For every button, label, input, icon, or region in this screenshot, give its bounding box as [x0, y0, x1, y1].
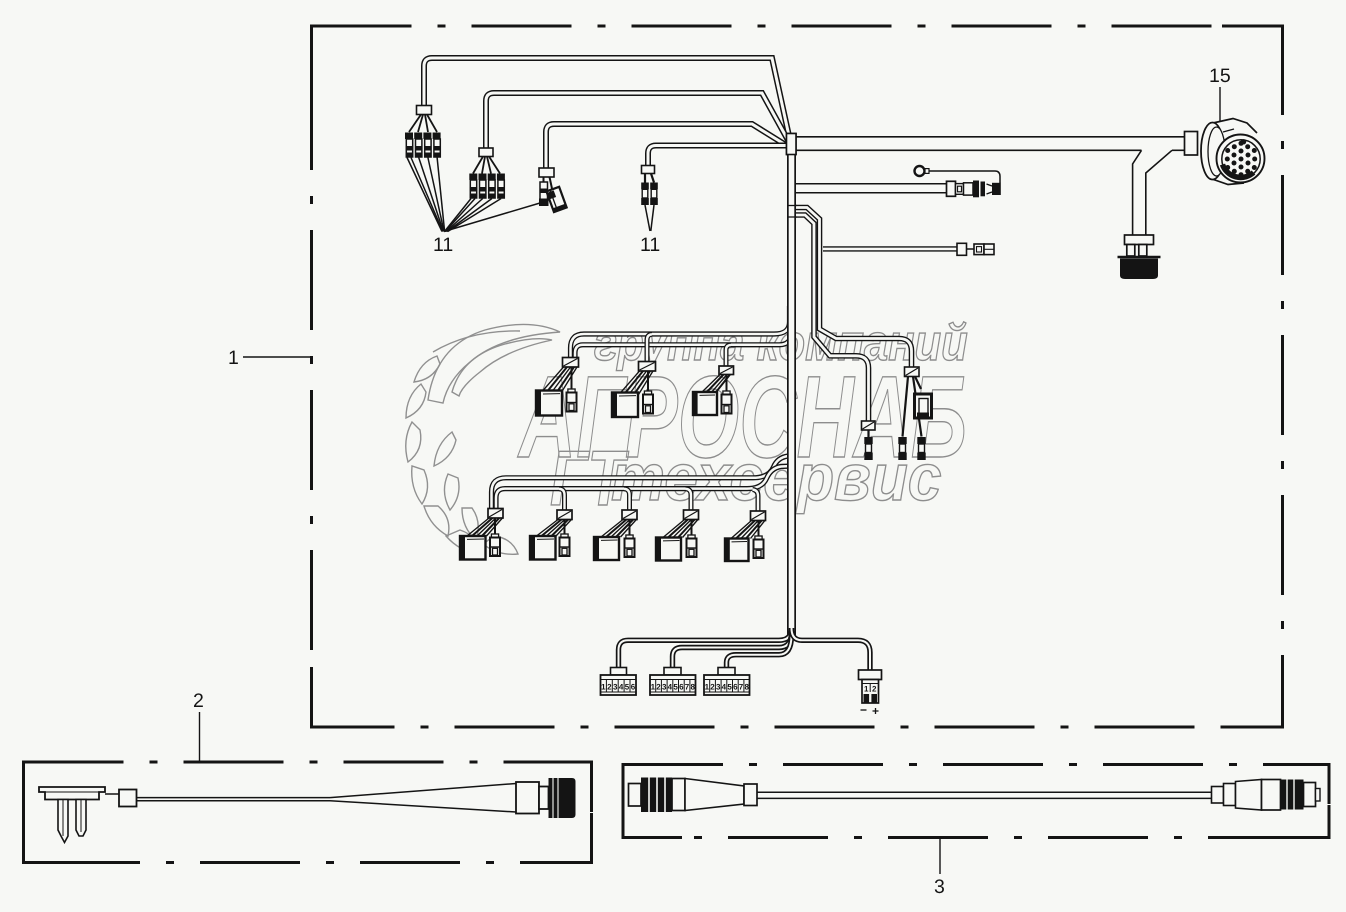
svg-text:5: 5 [673, 683, 678, 692]
svg-text:3: 3 [613, 683, 618, 692]
svg-text:3: 3 [662, 683, 667, 692]
svg-text:3: 3 [934, 876, 945, 898]
svg-text:1: 1 [651, 683, 656, 692]
svg-text:5: 5 [727, 683, 732, 692]
svg-text:+: + [872, 704, 879, 718]
svg-text:8: 8 [690, 683, 695, 692]
svg-text:4: 4 [668, 683, 673, 692]
svg-text:1: 1 [601, 683, 606, 692]
svg-text:5: 5 [625, 683, 630, 692]
svg-text:15: 15 [1209, 65, 1231, 87]
svg-text:11: 11 [640, 234, 660, 256]
svg-text:2: 2 [193, 690, 204, 712]
svg-text:11: 11 [433, 234, 453, 256]
svg-text:8: 8 [744, 683, 749, 692]
svg-text:4: 4 [722, 683, 727, 692]
svg-text:3: 3 [716, 683, 721, 692]
svg-text:7: 7 [685, 683, 690, 692]
svg-text:7: 7 [739, 683, 744, 692]
svg-text:−: − [860, 703, 867, 717]
svg-text:1: 1 [705, 683, 710, 692]
svg-text:2: 2 [656, 683, 661, 692]
svg-text:2: 2 [710, 683, 715, 692]
svg-text:6: 6 [733, 683, 738, 692]
svg-text:4: 4 [619, 683, 624, 692]
svg-text:6: 6 [631, 683, 636, 692]
svg-text:2: 2 [607, 683, 612, 692]
svg-text:1: 1 [228, 347, 239, 369]
svg-text:1: 1 [864, 685, 869, 694]
svg-text:2: 2 [872, 685, 877, 694]
svg-text:6: 6 [679, 683, 684, 692]
